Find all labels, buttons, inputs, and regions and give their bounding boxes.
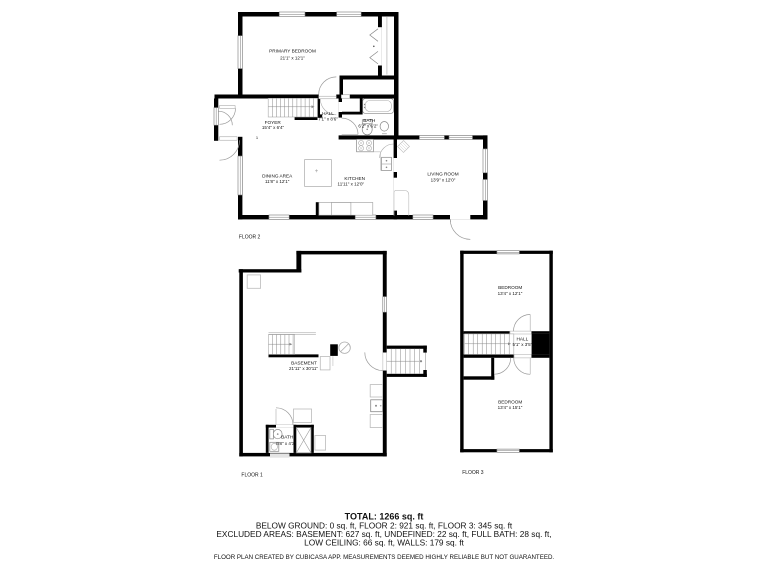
svg-text:BASEMENT: BASEMENT [291,360,317,365]
svg-text:6'8" x 4'3": 6'8" x 4'3" [276,441,296,446]
svg-text:BATH: BATH [363,118,375,123]
svg-text:21'1" x 12'1": 21'1" x 12'1" [280,55,305,60]
svg-text:DINING AREA: DINING AREA [262,174,293,179]
svg-text:6'2" x 6'2": 6'2" x 6'2" [358,124,378,129]
svg-text:HALL: HALL [517,337,529,342]
svg-text:13'9" x 12'0": 13'9" x 12'0" [431,177,456,182]
svg-text:HALL: HALL [322,111,334,116]
svg-text:FLOOR 1: FLOOR 1 [241,472,263,478]
svg-text:BEDROOM: BEDROOM [498,285,522,290]
svg-text:FLOOR 3: FLOOR 3 [462,470,484,476]
svg-text:5'1" x 3'5": 5'1" x 3'5" [513,342,533,347]
svg-text:15'4" x 6'4": 15'4" x 6'4" [262,125,285,130]
svg-text:BEDROOM: BEDROOM [498,399,522,404]
svg-text:7'1" x 8'6": 7'1" x 8'6" [318,117,338,122]
svg-text:LOW CEILING: 66 sq. ft, WALLS:: LOW CEILING: 66 sq. ft, WALLS: 179 sq. f… [304,538,464,548]
svg-text:13'4" x 15'1": 13'4" x 15'1" [498,405,523,410]
svg-text:KITCHEN: KITCHEN [344,176,365,181]
svg-text:21'11" x 30'11": 21'11" x 30'11" [289,366,318,371]
svg-text:PRIMARY BEDROOM: PRIMARY BEDROOM [269,49,316,54]
svg-text:FLOOR PLAN CREATED BY CUBICASA: FLOOR PLAN CREATED BY CUBICASA APP. MEAS… [214,554,555,561]
svg-text:13'4" x 12'1": 13'4" x 12'1" [498,291,523,296]
svg-text:FLOOR 2: FLOOR 2 [239,234,261,240]
svg-text:LIVING ROOM: LIVING ROOM [427,171,458,176]
svg-text:BATH: BATH [281,435,293,440]
svg-text:11'8" x 12'1": 11'8" x 12'1" [265,179,290,184]
svg-text:11'11" x 12'0": 11'11" x 12'0" [338,181,365,186]
